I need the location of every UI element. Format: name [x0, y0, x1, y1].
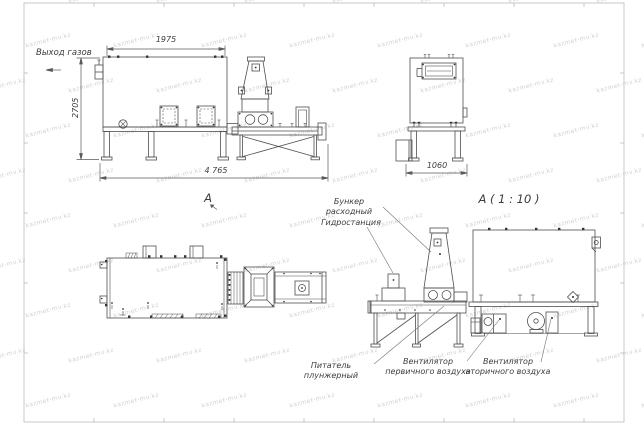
door-box-2 — [197, 106, 215, 126]
view-end-elevation — [396, 55, 467, 162]
gas-flow-arrow — [46, 68, 61, 71]
lifting-bracket — [592, 237, 601, 252]
secondary-air-fan-label: Вентилятор вторичного воздуха — [464, 357, 552, 376]
gas-outlet-stub — [95, 60, 103, 79]
furnace-body-end — [410, 58, 463, 123]
view-a-marker: А — [198, 192, 218, 206]
dim-1975-lines — [107, 46, 225, 57]
dim-2705-text: 2705 — [71, 93, 81, 123]
sight-glass-diamond — [568, 292, 579, 303]
leader-plunger-feeder — [374, 306, 444, 364]
view-side-elevation — [95, 56, 326, 161]
plunger-feeder-label: Питатель плунжерный — [284, 361, 378, 380]
feed-hopper-label: Бункер расходный — [310, 197, 388, 216]
hydraulic-station — [382, 274, 405, 301]
position-markers — [111, 262, 223, 315]
roof-bolts-end — [424, 55, 455, 59]
view-detail-a — [368, 228, 601, 347]
conveyor-plan — [275, 272, 326, 303]
door-box-1 — [160, 106, 178, 126]
feed-hopper-detail — [424, 228, 454, 288]
support-truss-side — [237, 135, 320, 160]
dimension-lines — [46, 46, 467, 210]
plunger-feeder-detail — [424, 288, 467, 302]
bottom-hatch-strips — [152, 314, 221, 318]
furnace-body — [95, 56, 229, 161]
dim-4765-text: 4 765 — [194, 166, 238, 176]
leader-feed-hopper — [383, 207, 431, 252]
view-plan — [100, 246, 326, 318]
bellows-connector-plan — [228, 272, 243, 304]
gas-outlet-label: Выход газов — [36, 48, 100, 58]
gas-outlet-duct — [417, 63, 456, 79]
furnace-body-plan — [100, 246, 227, 318]
hydraulic-station-label: Гидростанция — [320, 218, 382, 228]
leader-hydraulic-station — [367, 227, 393, 273]
dim-1975-text: 1975 — [146, 35, 186, 45]
leader-primary-fan — [467, 320, 499, 361]
primary-air-fan-label: Вентилятор первичного воздуха — [384, 357, 472, 376]
furnace-body-detail — [469, 228, 601, 336]
rail-bolts — [479, 295, 580, 302]
plunger-feeder-side — [238, 112, 273, 127]
furnace-base-frame — [102, 127, 229, 160]
feed-hopper-side — [239, 57, 272, 99]
top-hatch-strip — [126, 253, 137, 258]
secondary-air-fan — [528, 312, 559, 333]
drawing-sheet: { "meta": { "type": "engineering-drawing… — [0, 0, 644, 430]
dim-4765-lines — [100, 144, 328, 182]
feeder-housing-plan — [244, 267, 274, 307]
leader-lines — [367, 207, 551, 364]
dim-1060-text: 1060 — [417, 161, 457, 171]
support-truss-detail — [371, 313, 463, 347]
base-frame-end — [408, 122, 465, 161]
feeder-assembly-side — [227, 57, 326, 160]
feeder-plan — [228, 267, 326, 307]
detail-a-title: А ( 1 : 10 ) — [468, 193, 550, 207]
primary-air-fan — [471, 314, 506, 333]
feed-conveyor-detail — [368, 295, 466, 319]
